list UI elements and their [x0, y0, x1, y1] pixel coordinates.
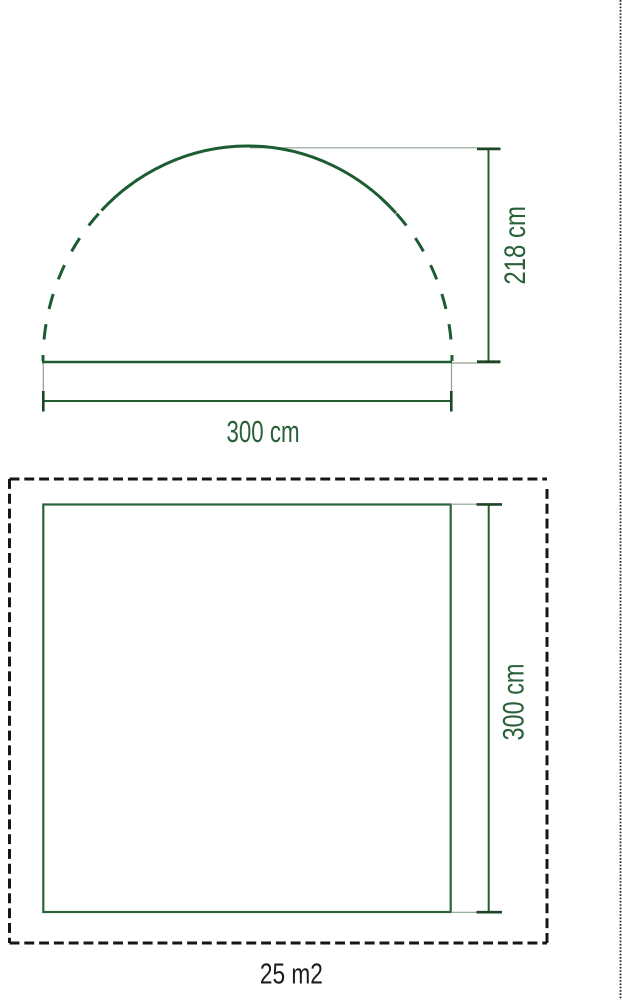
- svg-text:300 cm: 300 cm: [498, 664, 531, 741]
- svg-text:25 m2: 25 m2: [260, 958, 323, 990]
- svg-text:218 cm: 218 cm: [499, 206, 532, 285]
- svg-text:300 cm: 300 cm: [227, 415, 300, 449]
